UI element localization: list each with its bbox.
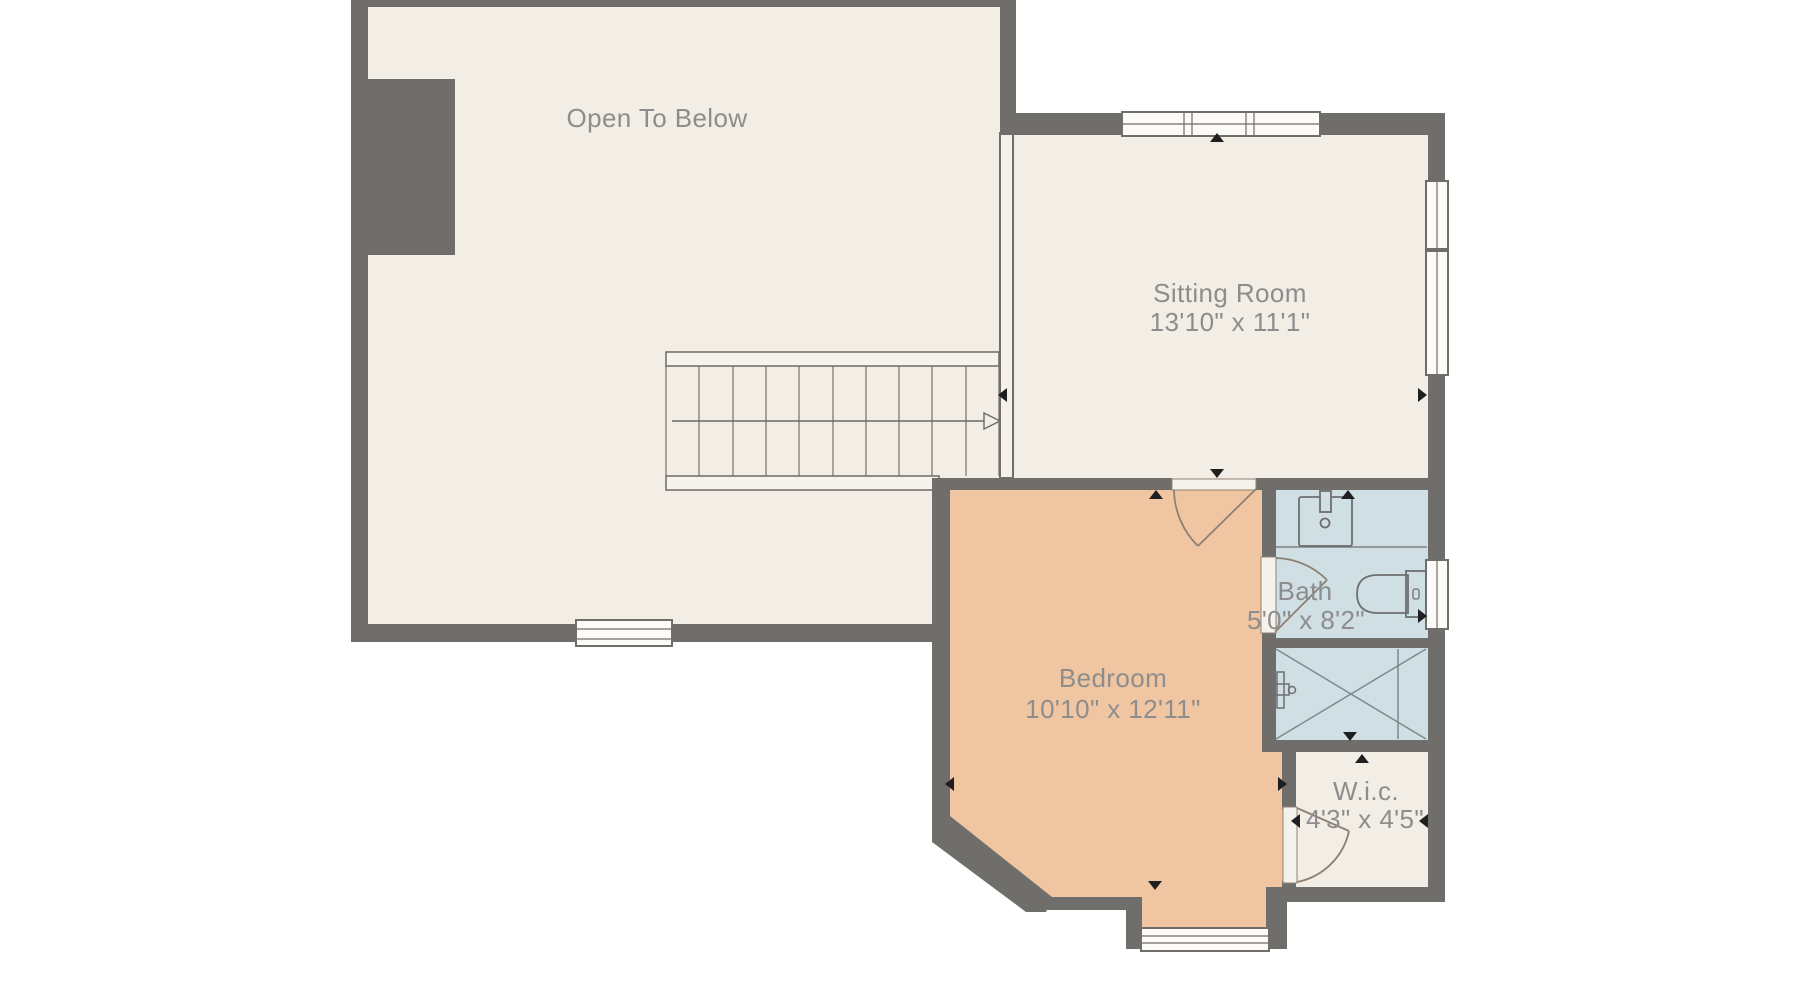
open-to-below-label: Open To Below bbox=[566, 103, 747, 133]
window-sitting-right-lower bbox=[1426, 251, 1448, 375]
window-bath-right bbox=[1426, 560, 1448, 629]
wall-right-1 bbox=[1428, 113, 1445, 183]
stair-rail-top bbox=[666, 352, 999, 366]
wall-bay-left-jamb bbox=[1126, 897, 1142, 949]
wall-shower-wic-sep bbox=[1262, 740, 1428, 752]
wall-right-3 bbox=[1428, 627, 1445, 902]
wall-right-2 bbox=[1428, 373, 1445, 562]
wall-bedroom-left bbox=[932, 478, 950, 822]
wall-bottom-left-b bbox=[670, 624, 948, 642]
sitting-room-label: Sitting Room bbox=[1153, 278, 1307, 308]
wall-bottom-left-a bbox=[351, 624, 578, 642]
wall-sitting-top-left bbox=[1016, 113, 1124, 135]
wall-wic-left-a bbox=[1282, 752, 1296, 809]
wall-wic-left-b bbox=[1282, 881, 1296, 902]
floor-plan-drawing: Open To Below Sitting Room 13'10" x 11'1… bbox=[0, 0, 1800, 1000]
bedroom-label: Bedroom bbox=[1059, 663, 1167, 693]
sitting-room-dimensions: 13'10" x 11'1" bbox=[1150, 307, 1311, 337]
floor-plan-canvas: Open To Below Sitting Room 13'10" x 11'1… bbox=[0, 0, 1800, 1000]
bedroom-dimensions: 10'10" x 12'11" bbox=[1025, 694, 1201, 724]
wall-bath-shower-sep bbox=[1262, 638, 1428, 648]
stair-rail-bottom bbox=[666, 476, 939, 490]
wall-bedroom-top-b bbox=[1256, 478, 1428, 490]
wall-bed-bath-b bbox=[1262, 633, 1276, 752]
wall-bed-bath-a bbox=[1262, 490, 1276, 557]
wic-label: W.i.c. bbox=[1333, 776, 1399, 806]
wall-top-strip bbox=[351, 0, 1016, 7]
interior-thin-wall bbox=[1000, 133, 1013, 478]
wall-left bbox=[351, 0, 368, 642]
wall-upper-vertical bbox=[1000, 0, 1016, 135]
bath-dimensions: 5'0" x 8'2" bbox=[1247, 605, 1365, 635]
wall-sitting-top-right bbox=[1318, 113, 1445, 135]
window-open-area-bottom bbox=[576, 620, 672, 646]
bath-label: Bath bbox=[1277, 576, 1332, 606]
window-sitting-right-upper bbox=[1426, 181, 1448, 249]
wic-dimensions: 4'3" x 4'5" bbox=[1306, 804, 1424, 834]
window-sitting-top bbox=[1122, 112, 1320, 136]
wall-bedroom-top-a bbox=[938, 478, 1172, 490]
window-bedroom-bay bbox=[1141, 928, 1269, 951]
chimney-block bbox=[366, 79, 455, 255]
wall-bedroom-bottom bbox=[1040, 897, 1128, 910]
bedroom-door-leaf-slot bbox=[1172, 479, 1256, 490]
room-floors bbox=[356, 2, 1440, 940]
